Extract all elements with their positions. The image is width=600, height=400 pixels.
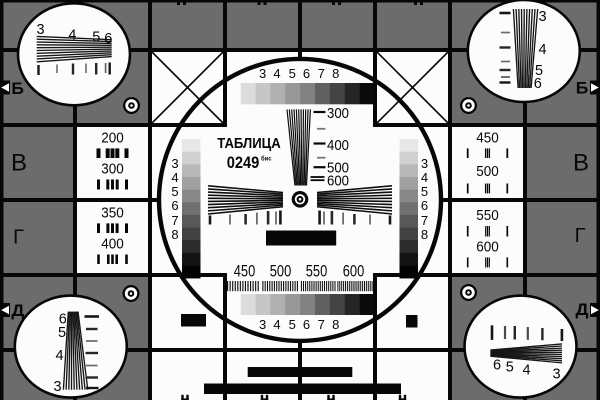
svg-text:600: 600 [476,239,499,255]
svg-text:4: 4 [55,348,63,364]
svg-text:550: 550 [306,261,328,280]
svg-text:4: 4 [538,42,546,58]
svg-text:Б: Б [576,79,589,97]
svg-text:8: 8 [332,317,339,332]
svg-text:бис: бис [261,155,272,163]
svg-text:400: 400 [327,138,349,154]
svg-text:4: 4 [68,27,76,43]
svg-text:6: 6 [421,198,428,213]
svg-text:4: 4 [273,66,280,81]
svg-text:500: 500 [270,261,292,280]
svg-text:500: 500 [476,164,499,180]
svg-text:6: 6 [303,317,310,332]
svg-text:Г: Г [13,227,24,249]
svg-text:8: 8 [171,227,178,242]
svg-text:5: 5 [506,359,514,375]
svg-text:ТАБЛИЦА: ТАБЛИЦА [217,135,281,152]
svg-text:В: В [11,150,27,177]
svg-text:450: 450 [476,131,499,147]
svg-text:Б: Б [11,80,24,98]
svg-text:Г: Г [575,225,586,247]
svg-text:6: 6 [534,76,542,92]
svg-text:6: 6 [303,66,310,81]
svg-text:6: 6 [171,198,178,213]
svg-text:7: 7 [171,213,178,228]
svg-text:7: 7 [421,213,428,228]
svg-text:В: В [573,150,589,177]
svg-text:300: 300 [327,106,349,122]
svg-text:200: 200 [101,131,124,147]
svg-text:600: 600 [327,174,349,190]
svg-text:3: 3 [53,379,61,395]
svg-text:5: 5 [58,325,66,341]
svg-text:450: 450 [234,261,256,280]
svg-text:Д: Д [11,302,24,320]
svg-text:5: 5 [421,184,428,199]
svg-text:7: 7 [318,317,325,332]
svg-text:4: 4 [421,170,428,185]
svg-text:3: 3 [538,9,546,25]
svg-text:400: 400 [101,236,124,252]
svg-text:300: 300 [101,162,124,178]
svg-text:3: 3 [259,317,266,332]
svg-text:8: 8 [332,66,339,81]
svg-text:4: 4 [523,362,531,378]
svg-text:3: 3 [421,156,428,171]
svg-text:8: 8 [421,227,428,242]
svg-text:3: 3 [171,156,178,171]
svg-text:Д: Д [576,301,589,319]
svg-text:3: 3 [37,22,45,38]
svg-text:550: 550 [476,208,499,224]
svg-text:6: 6 [104,31,112,47]
svg-text:3: 3 [259,66,266,81]
svg-text:350: 350 [101,205,124,221]
svg-text:5: 5 [289,317,296,332]
svg-text:6: 6 [493,358,501,374]
svg-text:7: 7 [318,66,325,81]
svg-text:4: 4 [273,317,280,332]
svg-text:600: 600 [343,261,365,280]
svg-text:3: 3 [553,366,561,382]
svg-text:4: 4 [171,170,178,185]
svg-text:5: 5 [289,66,296,81]
svg-text:5: 5 [92,30,100,46]
svg-text:5: 5 [171,184,178,199]
svg-text:0249: 0249 [227,154,260,172]
